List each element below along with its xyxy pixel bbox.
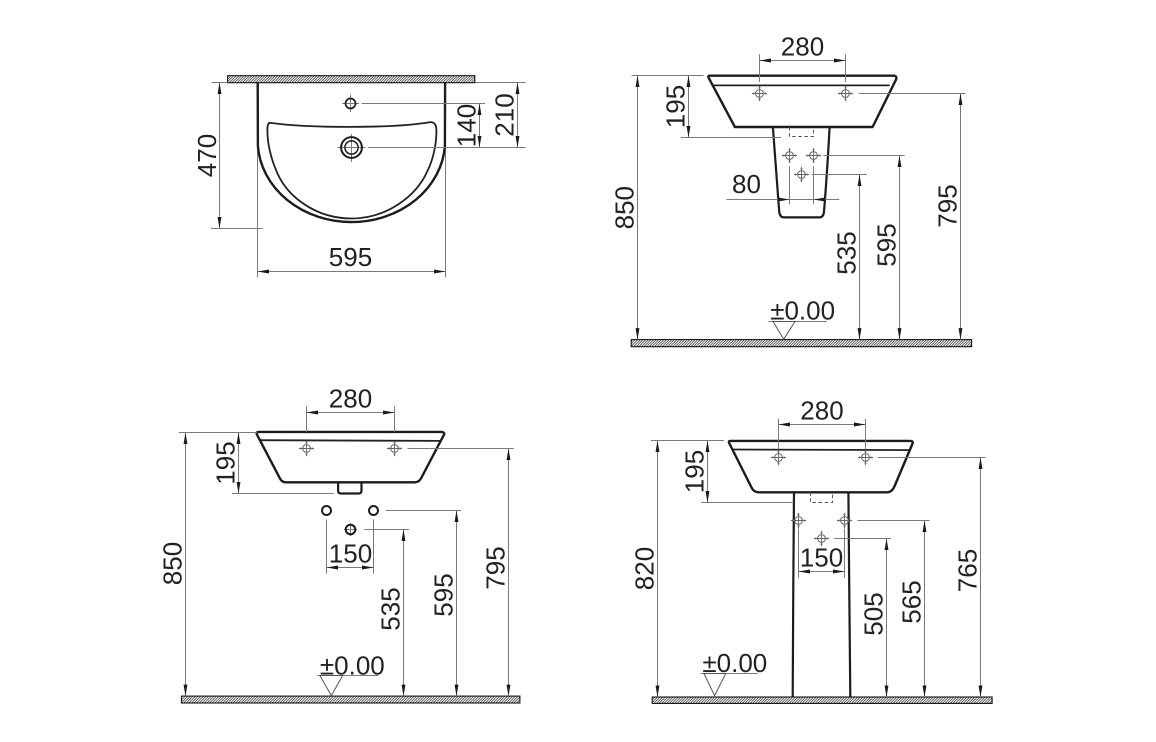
- svg-text:535: 535: [376, 587, 406, 630]
- svg-text:850: 850: [610, 186, 640, 229]
- svg-text:595: 595: [329, 242, 372, 272]
- svg-text:140: 140: [452, 104, 482, 147]
- svg-text:535: 535: [832, 231, 862, 274]
- svg-text:280: 280: [781, 32, 824, 62]
- svg-text:565: 565: [897, 580, 927, 623]
- svg-text:850: 850: [158, 542, 188, 585]
- svg-text:820: 820: [630, 547, 660, 590]
- svg-text:765: 765: [953, 549, 983, 592]
- svg-text:280: 280: [329, 384, 372, 414]
- svg-text:195: 195: [211, 441, 241, 484]
- svg-text:595: 595: [872, 223, 902, 266]
- svg-text:470: 470: [192, 134, 222, 177]
- svg-text:195: 195: [661, 85, 691, 128]
- svg-text:505: 505: [859, 592, 889, 635]
- svg-text:210: 210: [490, 93, 520, 136]
- svg-text:195: 195: [680, 450, 710, 493]
- svg-text:595: 595: [429, 573, 459, 616]
- svg-text:795: 795: [933, 184, 963, 227]
- svg-text:150: 150: [329, 539, 372, 569]
- svg-text:280: 280: [800, 396, 843, 426]
- svg-text:80: 80: [732, 169, 761, 199]
- svg-text:795: 795: [481, 546, 511, 589]
- svg-text:±0.00: ±0.00: [320, 651, 385, 681]
- svg-text:150: 150: [800, 543, 843, 573]
